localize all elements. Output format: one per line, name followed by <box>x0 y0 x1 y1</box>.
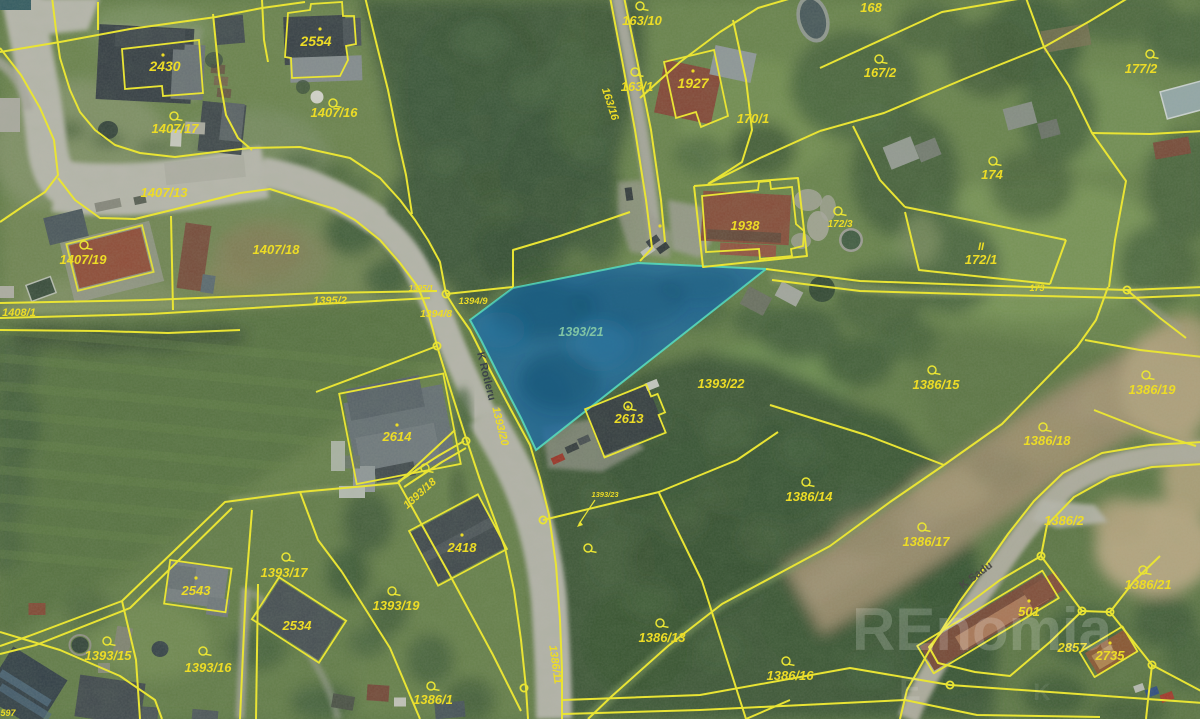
svg-text:1386/16: 1386/16 <box>767 668 815 683</box>
svg-text:1393/22: 1393/22 <box>698 376 746 391</box>
svg-text:2614: 2614 <box>382 429 413 444</box>
svg-text:172/1: 172/1 <box>965 252 998 267</box>
svg-text:1407/19: 1407/19 <box>60 252 108 267</box>
svg-text:2613: 2613 <box>614 411 645 426</box>
svg-text:K: K <box>1033 679 1051 706</box>
svg-text:173: 173 <box>1029 283 1044 293</box>
svg-text:II: II <box>978 241 985 253</box>
svg-text:1386/17: 1386/17 <box>903 534 951 549</box>
svg-text:1393/21: 1393/21 <box>558 325 603 339</box>
svg-text:172/3: 172/3 <box>827 219 852 230</box>
svg-text:163/10: 163/10 <box>622 13 663 28</box>
svg-text:1386/21: 1386/21 <box>1125 577 1172 592</box>
svg-text:1393/15: 1393/15 <box>85 648 133 663</box>
svg-text:1386/2: 1386/2 <box>1044 513 1085 528</box>
svg-text:1386/15: 1386/15 <box>913 377 961 392</box>
svg-text:1408/1: 1408/1 <box>2 307 36 319</box>
svg-text:1395/1: 1395/1 <box>409 284 434 293</box>
svg-text:1393/17: 1393/17 <box>261 565 309 580</box>
svg-text:1395/2: 1395/2 <box>313 295 347 307</box>
svg-text:1407/18: 1407/18 <box>253 242 301 257</box>
svg-text:1386/18: 1386/18 <box>1024 433 1072 448</box>
svg-text:174: 174 <box>981 167 1003 182</box>
svg-text:1393/19: 1393/19 <box>373 598 421 613</box>
svg-text:1393/23: 1393/23 <box>591 490 619 499</box>
svg-text:1394/9: 1394/9 <box>458 296 488 307</box>
svg-text:1386/19: 1386/19 <box>1129 382 1177 397</box>
svg-text:1407/16: 1407/16 <box>311 105 359 120</box>
svg-text:REnomia: REnomia <box>852 596 1113 663</box>
svg-text:2554: 2554 <box>299 33 331 49</box>
svg-text:167/2: 167/2 <box>864 65 897 80</box>
svg-text:170/1: 170/1 <box>737 111 770 126</box>
svg-text:1407/13: 1407/13 <box>141 185 189 200</box>
svg-text:1386/1: 1386/1 <box>413 692 453 707</box>
svg-text:E: E <box>899 671 920 707</box>
svg-text:1386/13: 1386/13 <box>639 630 687 645</box>
svg-text:1938: 1938 <box>731 218 761 233</box>
svg-text:1394/8: 1394/8 <box>420 308 452 320</box>
svg-text:2430: 2430 <box>148 58 180 74</box>
svg-text:2418: 2418 <box>447 540 478 555</box>
svg-text:163/1: 163/1 <box>621 79 654 94</box>
svg-text:1386/14: 1386/14 <box>786 489 834 504</box>
svg-text:168: 168 <box>860 0 882 15</box>
svg-text:1393/16: 1393/16 <box>185 660 233 675</box>
svg-text:2534: 2534 <box>282 618 313 633</box>
svg-text:1927: 1927 <box>677 75 709 91</box>
svg-text:2543: 2543 <box>181 583 212 598</box>
svg-text:177/2: 177/2 <box>1125 61 1158 76</box>
svg-text:1407/17: 1407/17 <box>152 121 200 136</box>
svg-text:597: 597 <box>0 708 16 718</box>
